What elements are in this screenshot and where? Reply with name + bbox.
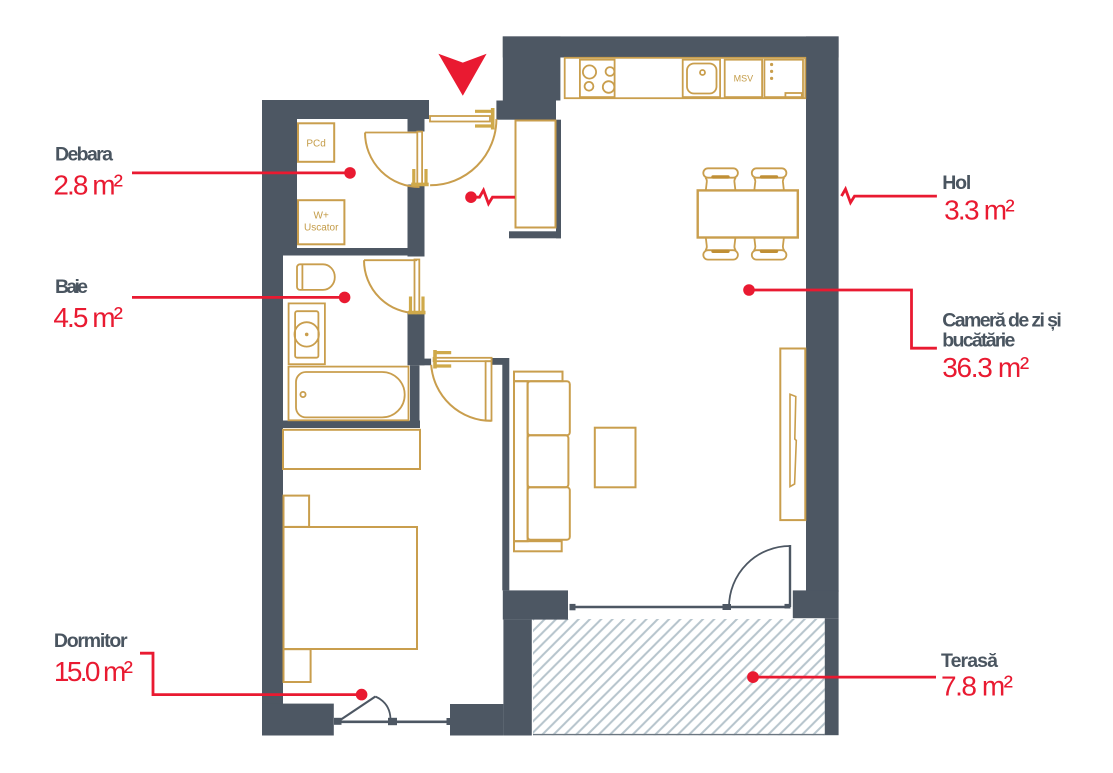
svg-text:Uscator: Uscator	[304, 223, 339, 234]
svg-text:bucătărie: bucătărie	[942, 329, 1015, 351]
svg-text:7.8 m²: 7.8 m²	[941, 671, 1013, 702]
svg-text:Cameră de zi și: Cameră de zi și	[942, 310, 1062, 332]
svg-text:Terasă: Terasă	[941, 650, 998, 672]
svg-text:2.8 m²: 2.8 m²	[53, 169, 123, 200]
svg-text:MSV: MSV	[734, 74, 754, 84]
svg-text:Hol: Hol	[942, 172, 971, 194]
svg-text:Dormitor: Dormitor	[54, 630, 128, 652]
svg-text:Debara: Debara	[55, 143, 113, 165]
svg-text:3.3 m²: 3.3 m²	[944, 195, 1015, 226]
svg-text:W+: W+	[314, 211, 329, 222]
svg-text:PCd: PCd	[306, 139, 325, 150]
svg-text:4.5 m²: 4.5 m²	[53, 302, 123, 333]
svg-text:36.3 m²: 36.3 m²	[942, 352, 1029, 383]
svg-text:15.0 m²: 15.0 m²	[54, 656, 133, 687]
svg-text:Baie: Baie	[55, 276, 88, 298]
